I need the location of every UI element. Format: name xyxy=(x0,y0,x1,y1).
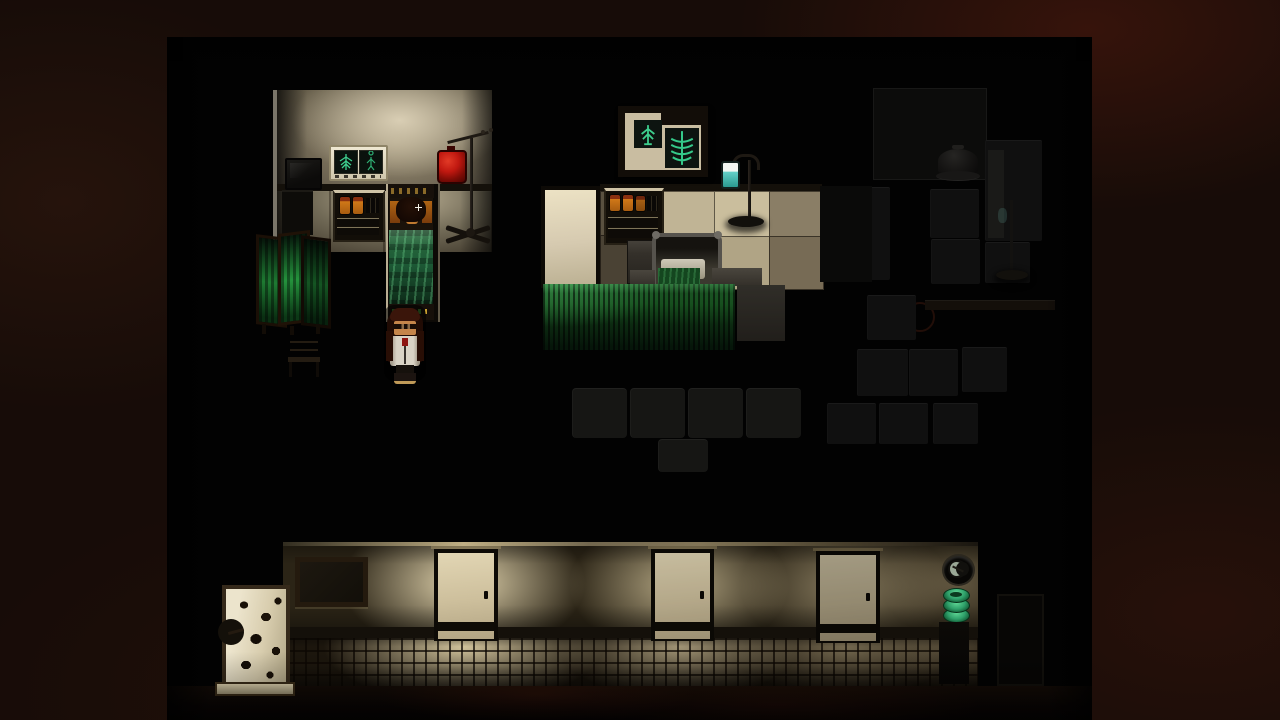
corridor-door-3[interactable] xyxy=(816,551,880,643)
dark-monitor[interactable] xyxy=(285,158,322,190)
dark-box xyxy=(931,239,980,284)
wall-panel xyxy=(769,191,824,238)
iv-stand-teal[interactable] xyxy=(718,152,762,230)
notice-board[interactable] xyxy=(295,557,368,607)
chair-leg xyxy=(316,362,319,377)
jar xyxy=(353,197,363,214)
dark-floor-tile xyxy=(688,388,743,438)
door-panel xyxy=(655,553,710,639)
dark-box xyxy=(857,349,908,396)
door-handle xyxy=(484,591,488,599)
chair[interactable] xyxy=(286,335,325,378)
floor-shadow-step xyxy=(407,457,492,505)
medicine-cabinet[interactable] xyxy=(333,190,385,242)
iv-base xyxy=(996,270,1028,280)
screen-leg xyxy=(316,324,320,334)
dark-box xyxy=(867,295,916,340)
xray-lightbox[interactable] xyxy=(329,145,388,181)
iv-pole xyxy=(748,160,751,220)
jar xyxy=(636,196,645,211)
corridor-floor xyxy=(167,686,1092,720)
dark-box xyxy=(879,403,928,444)
xray-tree-icon xyxy=(634,120,662,148)
screenshot-background xyxy=(0,0,1280,720)
green-blanket xyxy=(389,230,433,304)
xray-figure-icon xyxy=(360,151,382,173)
folding-screen[interactable] xyxy=(256,232,325,335)
dark-box xyxy=(909,349,958,396)
monitor-stand xyxy=(282,190,313,235)
wall-clock[interactable] xyxy=(942,554,975,586)
player-bangs xyxy=(390,308,420,321)
covered-dish[interactable] xyxy=(938,145,978,181)
chair-slat xyxy=(290,349,318,351)
corridor-door-1[interactable] xyxy=(434,549,498,641)
door-kick-plate xyxy=(438,622,494,631)
cabinet-drawer xyxy=(337,218,379,226)
green-basin-stack[interactable] xyxy=(943,588,969,624)
xray-tree-panel xyxy=(634,120,662,148)
screen-leg xyxy=(290,326,294,335)
iv-pole xyxy=(470,138,473,234)
cabinet-drawer xyxy=(337,227,379,235)
xray-ribcage-icon xyxy=(665,128,699,168)
dark-box xyxy=(933,403,978,444)
game-viewport[interactable] xyxy=(167,37,1092,720)
player-tie xyxy=(402,338,408,346)
player-glasses xyxy=(393,324,417,329)
jar xyxy=(340,197,350,214)
iv-base-hub xyxy=(466,228,475,237)
chair-leg xyxy=(289,362,292,377)
xray-spine-icon xyxy=(335,151,357,173)
jar xyxy=(623,195,633,211)
player-hair-left xyxy=(386,331,393,361)
xray-film-left xyxy=(334,150,358,174)
green-basin xyxy=(943,588,970,603)
dark-floor-tile xyxy=(658,439,708,472)
door-panel xyxy=(820,555,876,641)
bottle-glint xyxy=(998,208,1007,223)
door-handle xyxy=(866,593,870,601)
iv-stand-silhouette xyxy=(988,200,1035,290)
iv-stand-blood[interactable] xyxy=(437,128,497,247)
green-bed-curtain[interactable] xyxy=(543,284,735,350)
hair-sparkle-icon xyxy=(415,207,422,208)
bed-post-knob xyxy=(714,231,722,239)
dark-box xyxy=(827,403,876,444)
patient-hair xyxy=(396,197,426,222)
cloche-base xyxy=(936,171,980,181)
dark-box xyxy=(930,189,979,238)
ward-white-door[interactable] xyxy=(541,186,600,288)
frame-band xyxy=(661,113,701,125)
iv-base xyxy=(728,216,764,227)
player-character[interactable] xyxy=(378,303,432,383)
screen-leg xyxy=(262,324,266,334)
floor-shadow-step xyxy=(463,409,492,433)
gray-block xyxy=(737,285,785,341)
player-shoes xyxy=(394,373,416,384)
cabinet-slots xyxy=(366,198,379,213)
dark-floor-tile xyxy=(572,388,627,438)
screen-panel xyxy=(301,235,331,329)
door-panel xyxy=(545,190,596,286)
iv-hook xyxy=(481,130,485,134)
player-hair-right xyxy=(417,331,424,361)
dark-shelf xyxy=(925,300,1055,310)
dark-corridor-door[interactable] xyxy=(997,594,1044,686)
bed-headboard xyxy=(388,184,434,198)
corridor-door-2[interactable] xyxy=(651,549,714,641)
iv-hook xyxy=(489,128,493,132)
door-kick-plate xyxy=(655,622,710,631)
wall-panel xyxy=(769,236,824,290)
door-handle xyxy=(700,591,704,599)
blood-bag xyxy=(437,150,467,184)
xray-ribcage-panel xyxy=(665,128,699,168)
stained-panel[interactable] xyxy=(222,585,290,692)
floor-shadow-step xyxy=(435,433,492,457)
cabinet-drawer xyxy=(608,217,658,227)
dark-floor-tile xyxy=(746,388,801,438)
cabinet-slots xyxy=(647,196,658,211)
bed-post-knob xyxy=(652,231,660,239)
headboard-ticks xyxy=(391,188,431,194)
xray-film-right xyxy=(359,150,383,174)
cabinet-drawer xyxy=(608,228,658,238)
lightbox-buttons xyxy=(335,175,381,178)
stack-pedestal xyxy=(939,622,969,684)
xray-picture-frame[interactable] xyxy=(618,106,708,177)
dark-tv xyxy=(820,186,872,282)
corridor-tiled-wall xyxy=(283,638,978,686)
jar xyxy=(610,195,620,211)
door-panel xyxy=(438,553,494,639)
teal-bottle xyxy=(721,161,740,189)
stained-panel-base xyxy=(215,682,295,696)
occupied-bed[interactable] xyxy=(386,184,440,322)
dark-box xyxy=(962,347,1007,392)
iv-pole xyxy=(1010,200,1013,272)
chair-slat xyxy=(290,341,318,343)
basin-hole xyxy=(950,592,962,597)
cloche-dome xyxy=(938,149,978,173)
dark-floor-tile xyxy=(630,388,685,438)
door-kick-plate xyxy=(820,624,876,633)
